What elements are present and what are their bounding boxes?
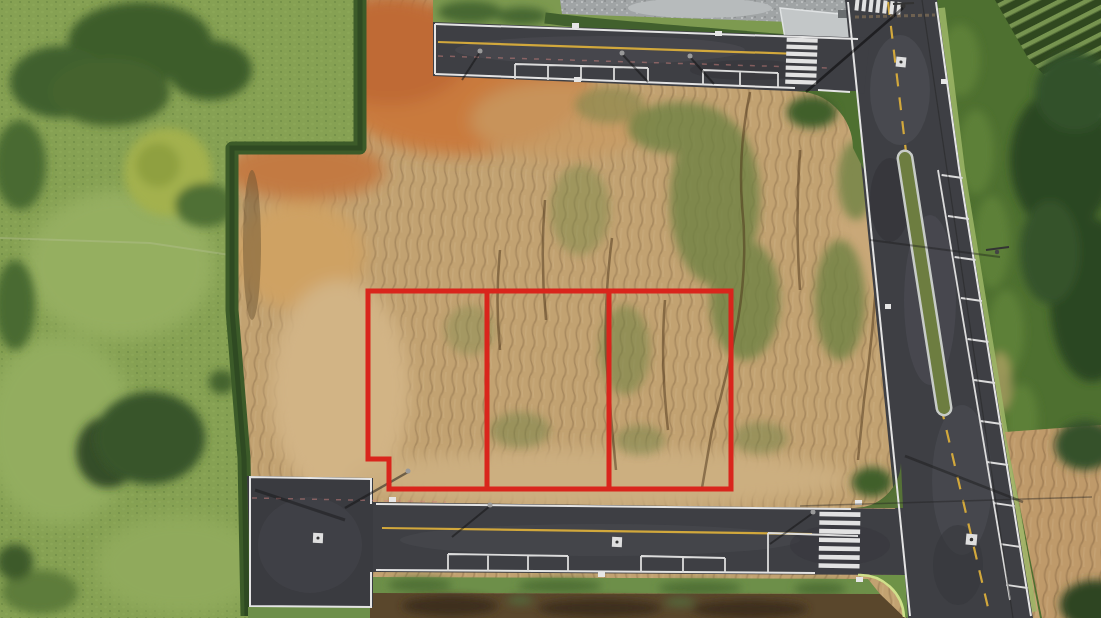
hedge-shadow <box>243 170 261 320</box>
below-pad-grass <box>248 607 370 618</box>
lot-3 <box>609 291 731 489</box>
screenshot-root <box>0 0 1101 618</box>
pad-wear <box>258 497 362 593</box>
lot-2 <box>487 291 609 489</box>
aerial-photo <box>0 0 1101 618</box>
fillet-bush-north <box>787 96 837 128</box>
fillet-bush-south <box>852 467 892 497</box>
lot-outlines <box>368 291 731 489</box>
